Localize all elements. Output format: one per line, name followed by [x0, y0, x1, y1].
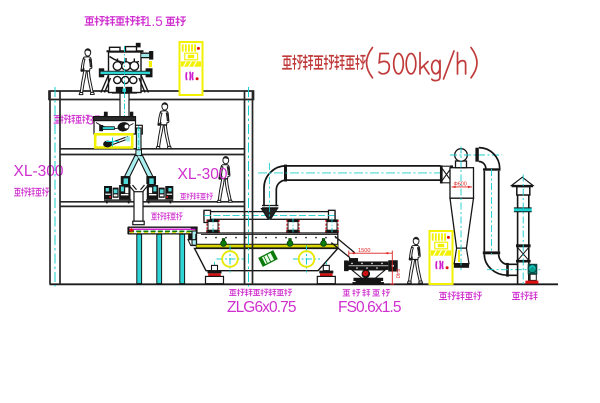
svg-text:1.5: 1.5	[144, 14, 163, 29]
svg-text:FS0.6x1.5: FS0.6x1.5	[338, 299, 401, 316]
svg-text:540: 540	[394, 269, 400, 278]
svg-text:XL-300: XL-300	[14, 163, 64, 180]
svg-text:1500: 1500	[358, 248, 370, 254]
svg-text:XL-300: XL-300	[178, 166, 228, 183]
svg-text:Φ600: Φ600	[454, 181, 467, 187]
svg-text:ZLG6x0.75: ZLG6x0.75	[227, 299, 296, 316]
